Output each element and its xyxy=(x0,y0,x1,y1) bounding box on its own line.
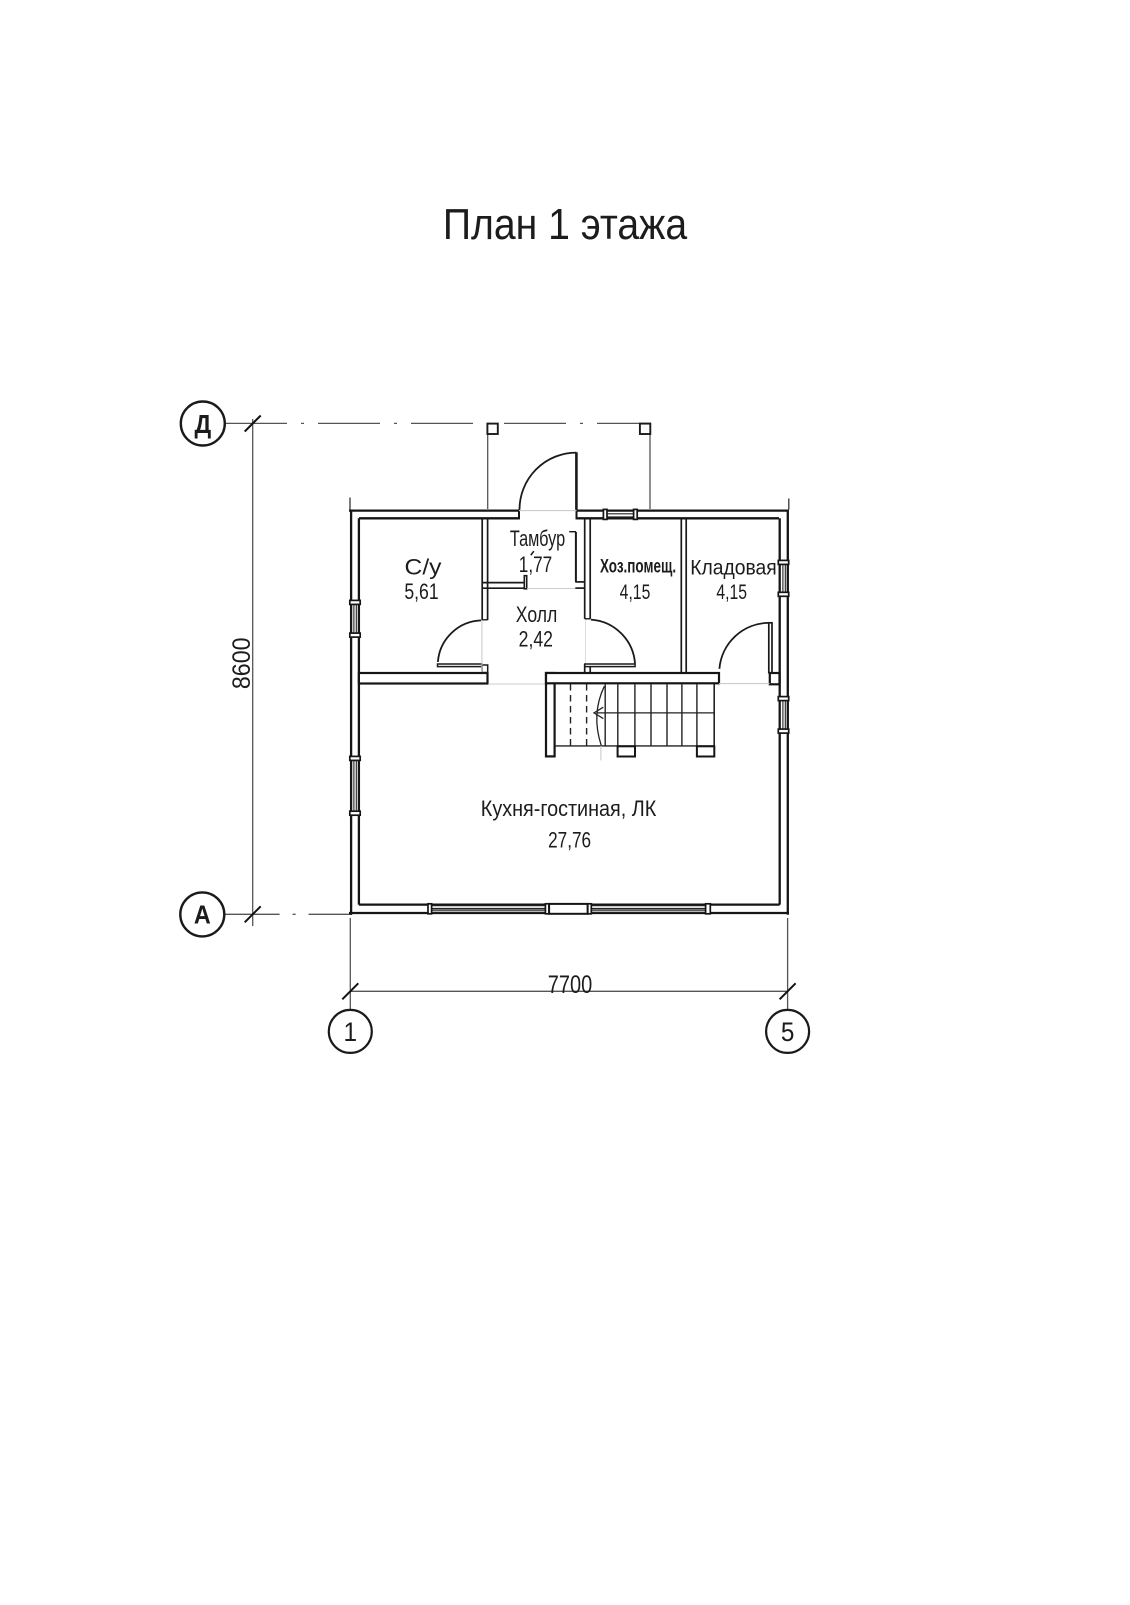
svg-text:8600: 8600 xyxy=(228,637,256,689)
svg-text:2,42: 2,42 xyxy=(519,628,553,652)
svg-text:27,76: 27,76 xyxy=(548,829,591,854)
svg-text:С/у: С/у xyxy=(405,555,442,579)
svg-text:Хоз.помещ.: Хоз.помещ. xyxy=(600,556,676,577)
svg-text:1: 1 xyxy=(344,1018,358,1047)
svg-text:А: А xyxy=(194,901,211,929)
svg-text:План 1 этажа: План 1 этажа xyxy=(443,199,688,249)
svg-text:5,61: 5,61 xyxy=(404,580,438,604)
svg-text:Д: Д xyxy=(194,411,211,439)
svg-text:5: 5 xyxy=(781,1018,795,1047)
svg-text:Кладовая: Кладовая xyxy=(690,557,776,580)
svg-text:Кухня-гостиная, ЛК: Кухня-гостиная, ЛК xyxy=(481,797,657,821)
svg-text:7700: 7700 xyxy=(548,971,592,999)
svg-text:4,15: 4,15 xyxy=(716,580,747,604)
svg-text:Холл: Холл xyxy=(516,603,557,627)
svg-text:1,77: 1,77 xyxy=(519,553,552,578)
svg-text:4,15: 4,15 xyxy=(620,580,651,604)
svg-text:Тамбур: Тамбур xyxy=(510,526,565,551)
